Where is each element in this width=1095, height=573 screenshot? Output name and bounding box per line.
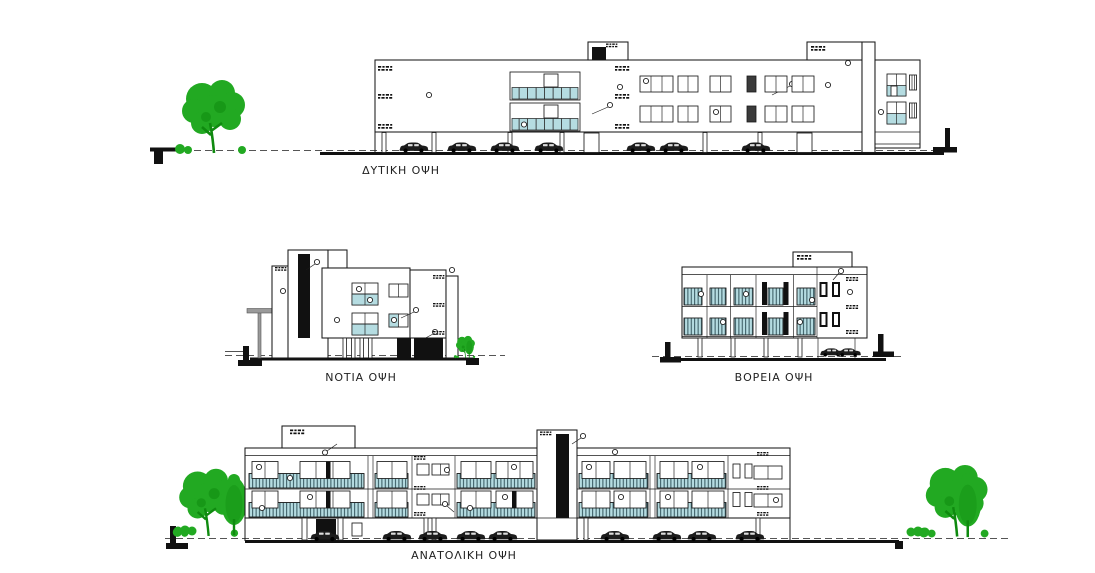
building — [272, 250, 458, 358]
elevation-sheet: ΔΥΤΙΚΗ ΟΨΗ — [0, 0, 1095, 573]
tree — [907, 465, 989, 538]
north-elevation-label: ΒΟΡΕΙΑ ΟΨΗ — [735, 371, 814, 384]
east-elevation: ΑΝΑΤΟΛΙΚΗ ΟΨΗ — [165, 426, 1008, 562]
west-elevation-label: ΔΥΤΙΚΗ ΟΨΗ — [362, 164, 440, 177]
tree — [173, 469, 247, 537]
building — [682, 252, 867, 358]
street-lamp — [247, 309, 273, 359]
wall-marker — [166, 526, 903, 549]
east-elevation-label: ΑΝΑΤΟΛΙΚΗ ΟΨΗ — [411, 549, 517, 562]
north-elevation: ΒΟΡΕΙΑ ΟΨΗ — [652, 252, 902, 384]
south-elevation-label: ΝΟΤΙΑ ΟΨΗ — [325, 371, 397, 384]
south-elevation: ΝΟΤΙΑ ΟΨΗ — [225, 250, 505, 384]
west-elevation: ΔΥΤΙΚΗ ΟΨΗ — [150, 42, 957, 177]
elevations-drawing: ΔΥΤΙΚΗ ΟΨΗ — [0, 0, 1095, 573]
building — [245, 426, 790, 541]
building — [375, 42, 920, 153]
tree — [175, 80, 246, 154]
